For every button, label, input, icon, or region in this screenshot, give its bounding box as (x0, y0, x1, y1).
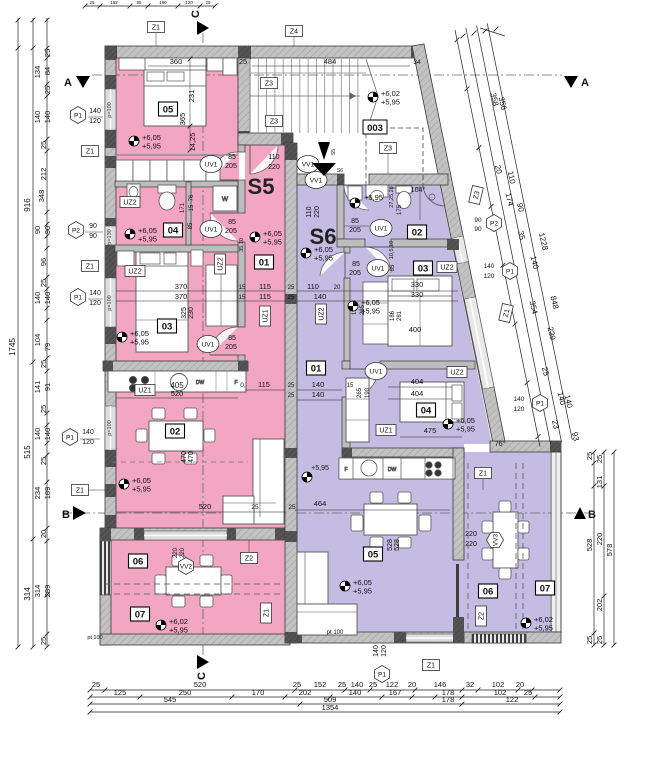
svg-text:A: A (64, 77, 72, 89)
svg-text:140: 140 (43, 428, 52, 441)
svg-text:+5,95: +5,95 (311, 465, 329, 472)
svg-text:04: 04 (421, 405, 432, 416)
svg-text:85: 85 (351, 218, 359, 225)
svg-text:UV1: UV1 (205, 226, 218, 233)
svg-text:90: 90 (43, 226, 52, 234)
svg-text:Z3: Z3 (265, 81, 273, 88)
svg-text:85: 85 (228, 154, 236, 161)
svg-text:03: 03 (418, 263, 429, 274)
svg-text:VV2: VV2 (180, 563, 193, 570)
svg-text:110: 110 (307, 282, 319, 291)
svg-text:360: 360 (170, 57, 183, 66)
svg-text:520: 520 (199, 502, 212, 511)
svg-text:27,25,28: 27,25,28 (389, 186, 395, 207)
svg-text:25: 25 (288, 393, 295, 399)
svg-text:131: 131 (595, 476, 604, 489)
svg-text:20: 20 (39, 530, 48, 538)
svg-text:220: 220 (465, 531, 477, 538)
svg-text:+5,95: +5,95 (169, 626, 188, 635)
svg-text:25: 25 (288, 285, 295, 291)
svg-text:25: 25 (39, 360, 48, 368)
svg-text:160: 160 (159, 0, 167, 5)
svg-text:VV1: VV1 (302, 161, 315, 168)
svg-text:UV1: UV1 (205, 161, 218, 168)
svg-text:122: 122 (506, 695, 519, 704)
svg-text:230: 230 (188, 307, 195, 319)
svg-text:140: 140 (314, 292, 327, 301)
svg-text:25: 25 (205, 0, 211, 5)
svg-text:202: 202 (299, 688, 312, 697)
svg-text:05: 05 (163, 104, 174, 115)
svg-text:85: 85 (352, 261, 360, 268)
svg-text:365: 365 (178, 113, 187, 126)
svg-text:F: F (234, 380, 237, 386)
svg-text:VV3: VV3 (492, 533, 499, 546)
svg-text:Z3: Z3 (270, 119, 278, 126)
svg-text:140: 140 (312, 390, 325, 399)
svg-text:C: C (190, 10, 202, 18)
svg-text:34: 34 (413, 59, 421, 66)
svg-text:170: 170 (252, 688, 265, 697)
svg-text:pt 100: pt 100 (327, 630, 344, 636)
svg-text:404: 404 (411, 389, 424, 398)
svg-text:79: 79 (43, 343, 52, 351)
svg-text:125: 125 (114, 688, 127, 697)
svg-text:Z3: Z3 (384, 146, 392, 153)
svg-text:115: 115 (258, 380, 270, 389)
svg-text:140: 140 (312, 380, 325, 389)
svg-text:+5,95: +5,95 (364, 193, 383, 202)
svg-text:04: 04 (168, 225, 179, 236)
svg-text:+5,95: +5,95 (314, 254, 333, 263)
svg-text:140: 140 (33, 428, 42, 441)
svg-text:325: 325 (181, 307, 188, 319)
svg-text:UV1: UV1 (372, 265, 385, 272)
svg-text:Z1: Z1 (479, 471, 487, 478)
svg-text:102: 102 (494, 688, 507, 697)
svg-text:06: 06 (483, 586, 494, 597)
svg-text:84: 84 (43, 67, 52, 75)
svg-text:189: 189 (43, 487, 52, 500)
svg-text:pt 100: pt 100 (87, 635, 102, 641)
svg-text:32: 32 (466, 680, 474, 689)
svg-text:330: 330 (411, 280, 424, 289)
svg-text:10,5,10: 10,5,10 (389, 241, 395, 259)
svg-text:0,: 0, (240, 382, 246, 389)
svg-text:p=100: p=100 (107, 295, 113, 310)
svg-text:1354: 1354 (322, 703, 339, 712)
svg-text:171: 171 (180, 202, 186, 213)
svg-text:+5,95: +5,95 (138, 235, 157, 244)
svg-text:141: 141 (33, 381, 42, 394)
svg-text:475: 475 (424, 426, 437, 435)
svg-text:90: 90 (474, 217, 482, 224)
svg-text:175: 175 (397, 204, 403, 215)
svg-text:Z1: Z1 (152, 25, 160, 32)
svg-text:20: 20 (334, 285, 341, 291)
svg-text:90: 90 (474, 226, 482, 233)
svg-text:578: 578 (605, 544, 614, 557)
svg-text:1745: 1745 (8, 338, 17, 356)
svg-text:UZ1: UZ1 (379, 428, 392, 435)
svg-text:528: 528 (394, 539, 401, 551)
svg-text:265: 265 (357, 387, 363, 398)
svg-text:DW: DW (388, 467, 397, 473)
svg-text:UZ2: UZ2 (123, 200, 136, 207)
svg-text:220: 220 (173, 547, 179, 558)
svg-text:120: 120 (484, 273, 495, 280)
svg-text:15: 15 (239, 285, 246, 291)
svg-text:470: 470 (188, 451, 195, 463)
svg-text:140: 140 (33, 111, 42, 124)
svg-text:140: 140 (89, 290, 101, 297)
svg-text:186: 186 (390, 310, 396, 321)
svg-text:220: 220 (180, 547, 186, 558)
svg-text:140: 140 (484, 263, 495, 270)
svg-text:90: 90 (89, 223, 97, 230)
svg-text:A: A (581, 77, 589, 89)
svg-text:p=100: p=100 (107, 420, 113, 435)
svg-text:S5: S5 (331, 149, 337, 155)
svg-text:120: 120 (514, 406, 525, 413)
svg-text:85: 85 (188, 222, 194, 229)
svg-text:B: B (588, 509, 596, 521)
svg-text:25: 25 (288, 504, 296, 511)
svg-text:W: W (222, 196, 229, 203)
svg-text:003: 003 (367, 123, 383, 134)
svg-text:152: 152 (110, 0, 118, 5)
svg-text:190: 190 (365, 387, 371, 398)
svg-text:+5,95: +5,95 (361, 307, 380, 316)
svg-text:Z1: Z1 (86, 264, 94, 271)
svg-text:25: 25 (288, 295, 295, 301)
svg-text:P2: P2 (490, 220, 498, 227)
svg-text:205: 205 (225, 163, 237, 170)
svg-text:25: 25 (595, 455, 604, 463)
svg-text:07: 07 (540, 583, 551, 594)
svg-text:545: 545 (164, 695, 177, 704)
svg-text:140: 140 (89, 108, 101, 115)
svg-text:+5,95: +5,95 (353, 587, 372, 596)
svg-text:205: 205 (349, 227, 361, 234)
svg-text:25: 25 (39, 405, 48, 413)
svg-text:120: 120 (381, 645, 388, 657)
svg-text:UZ2: UZ2 (450, 370, 463, 377)
svg-text:P1: P1 (74, 112, 82, 119)
svg-text:Z1: Z1 (86, 149, 94, 156)
svg-text:140: 140 (82, 429, 94, 436)
svg-text:140: 140 (33, 292, 42, 305)
svg-text:p=130: p=130 (107, 229, 113, 244)
svg-text:205: 205 (225, 228, 237, 235)
svg-text:104°: 104° (411, 186, 426, 194)
svg-text:464: 464 (314, 499, 327, 508)
svg-text:UZ2: UZ2 (440, 265, 453, 272)
svg-text:140: 140 (43, 111, 52, 124)
svg-text:140: 140 (514, 396, 525, 403)
svg-text:01: 01 (259, 257, 270, 268)
svg-text:220: 220 (314, 206, 321, 218)
svg-text:104: 104 (33, 334, 42, 347)
svg-text:167: 167 (389, 688, 402, 697)
svg-text:15: 15 (347, 383, 354, 389)
svg-text:07: 07 (135, 609, 146, 620)
svg-text:01: 01 (311, 363, 322, 374)
svg-text:484: 484 (324, 57, 337, 66)
svg-text:25: 25 (585, 452, 594, 460)
svg-text:314: 314 (33, 585, 42, 598)
svg-text:85: 85 (228, 335, 236, 342)
svg-text:205: 205 (225, 344, 237, 351)
svg-text:S5: S5 (248, 174, 275, 199)
svg-text:330: 330 (411, 290, 424, 299)
svg-text:25: 25 (369, 680, 377, 689)
svg-text:UV1: UV1 (370, 368, 383, 375)
svg-text:140: 140 (349, 688, 362, 697)
svg-text:95: 95 (136, 0, 142, 5)
svg-text:314: 314 (23, 587, 32, 601)
svg-text:B: B (62, 509, 70, 521)
svg-text:25: 25 (43, 49, 52, 57)
svg-text:+5,95: +5,95 (381, 98, 400, 107)
svg-text:120: 120 (82, 439, 94, 446)
svg-text:Z1: Z1 (76, 488, 84, 495)
svg-text:S6: S6 (337, 168, 343, 174)
svg-text:120: 120 (185, 0, 193, 5)
svg-text:520: 520 (171, 389, 184, 398)
svg-text:115: 115 (259, 282, 271, 291)
svg-text:25: 25 (288, 383, 295, 389)
svg-text:152: 152 (314, 680, 327, 689)
svg-text:25: 25 (338, 680, 346, 689)
svg-text:+5,95: +5,95 (534, 624, 553, 633)
svg-text:UV1: UV1 (375, 225, 388, 232)
svg-text:UV1: UV1 (202, 341, 215, 348)
svg-text:F: F (344, 467, 347, 473)
svg-text:Z1: Z1 (427, 663, 435, 670)
svg-text:25: 25 (39, 279, 48, 287)
svg-text:220: 220 (465, 541, 477, 548)
svg-text:UZ2: UZ2 (128, 269, 141, 276)
svg-text:178: 178 (442, 695, 455, 704)
svg-text:05: 05 (368, 549, 379, 560)
svg-text:15: 15 (239, 295, 246, 301)
svg-text:DW: DW (196, 380, 205, 386)
svg-text:+5,95: +5,95 (130, 338, 149, 347)
svg-text:+5,95: +5,95 (132, 485, 151, 494)
svg-text:90: 90 (89, 233, 97, 240)
svg-text:212: 212 (39, 168, 48, 181)
svg-text:115: 115 (259, 292, 271, 301)
svg-text:P1: P1 (74, 294, 82, 301)
svg-text:Z2: Z2 (479, 612, 486, 620)
svg-text:25: 25 (39, 141, 48, 149)
svg-text:205: 205 (349, 270, 361, 277)
svg-text:528: 528 (387, 539, 394, 551)
svg-text:P2: P2 (72, 227, 80, 234)
svg-text:76°: 76° (495, 440, 506, 448)
svg-text:25: 25 (92, 680, 100, 689)
svg-text:06: 06 (133, 556, 144, 567)
svg-text:P1: P1 (66, 434, 74, 441)
svg-text:20: 20 (408, 680, 416, 689)
svg-text:25: 25 (89, 0, 95, 5)
svg-text:85: 85 (228, 219, 236, 226)
svg-text:02: 02 (412, 227, 423, 238)
svg-text:250: 250 (179, 688, 192, 697)
svg-text:+5,95: +5,95 (142, 142, 161, 151)
svg-text:25: 25 (239, 57, 247, 66)
svg-text:25: 25 (585, 636, 594, 644)
svg-text:520: 520 (194, 680, 207, 689)
svg-text:400: 400 (409, 325, 422, 334)
svg-text:289: 289 (43, 585, 52, 598)
svg-text:515: 515 (23, 445, 32, 459)
svg-text:140: 140 (373, 645, 380, 657)
svg-text:02: 02 (170, 426, 181, 437)
svg-text:P1: P1 (506, 268, 514, 275)
svg-text:528: 528 (585, 539, 594, 552)
svg-text:916: 916 (23, 198, 32, 212)
svg-text:P1: P1 (536, 400, 544, 407)
svg-text:90: 90 (33, 226, 42, 234)
svg-text:220: 220 (268, 164, 280, 171)
svg-text:UZ1: UZ1 (138, 388, 151, 395)
svg-text:220: 220 (595, 533, 604, 546)
svg-text:120: 120 (89, 118, 101, 125)
svg-text:134: 134 (33, 66, 42, 79)
svg-text:110: 110 (268, 154, 279, 161)
svg-text:25: 25 (595, 636, 604, 644)
svg-text:UZ1: UZ1 (263, 309, 270, 322)
svg-text:25: 25 (39, 457, 48, 465)
svg-text:14,25: 14,25 (188, 133, 197, 152)
svg-text:404: 404 (411, 377, 424, 386)
svg-text:25: 25 (524, 688, 532, 697)
svg-text:85: 85 (390, 264, 396, 271)
svg-text:25: 25 (251, 504, 259, 511)
svg-text:110: 110 (306, 206, 313, 217)
svg-text:96: 96 (39, 258, 48, 266)
svg-text:Z1: Z1 (264, 609, 271, 617)
svg-text:15: 15 (189, 204, 195, 211)
svg-text:231: 231 (187, 90, 196, 103)
svg-text:+5,95: +5,95 (456, 425, 475, 434)
svg-text:UZ2: UZ2 (319, 307, 326, 320)
svg-text:03: 03 (162, 321, 173, 332)
svg-text:25: 25 (39, 637, 48, 645)
svg-text:P1: P1 (378, 671, 386, 678)
svg-text:120: 120 (89, 300, 101, 307)
svg-text:+5,95: +5,95 (263, 238, 282, 247)
svg-text:p=100: p=100 (107, 102, 113, 117)
svg-text:370: 370 (175, 292, 188, 301)
svg-text:Z2: Z2 (245, 556, 253, 563)
svg-text:Z4: Z4 (290, 29, 298, 36)
svg-text:VV1: VV1 (310, 177, 323, 184)
svg-text:25: 25 (43, 86, 52, 94)
svg-text:234: 234 (33, 487, 42, 500)
svg-text:UZ2: UZ2 (218, 257, 225, 270)
svg-text:470: 470 (181, 451, 188, 463)
svg-text:91: 91 (43, 383, 52, 391)
svg-text:C: C (196, 672, 208, 680)
svg-text:348: 348 (37, 190, 46, 203)
svg-text:76: 76 (189, 194, 195, 201)
svg-text:281: 281 (397, 310, 403, 321)
svg-text:35,10: 35,10 (239, 238, 245, 252)
svg-text:202: 202 (595, 599, 604, 612)
svg-text:140: 140 (43, 292, 52, 305)
svg-text:370: 370 (175, 282, 188, 291)
